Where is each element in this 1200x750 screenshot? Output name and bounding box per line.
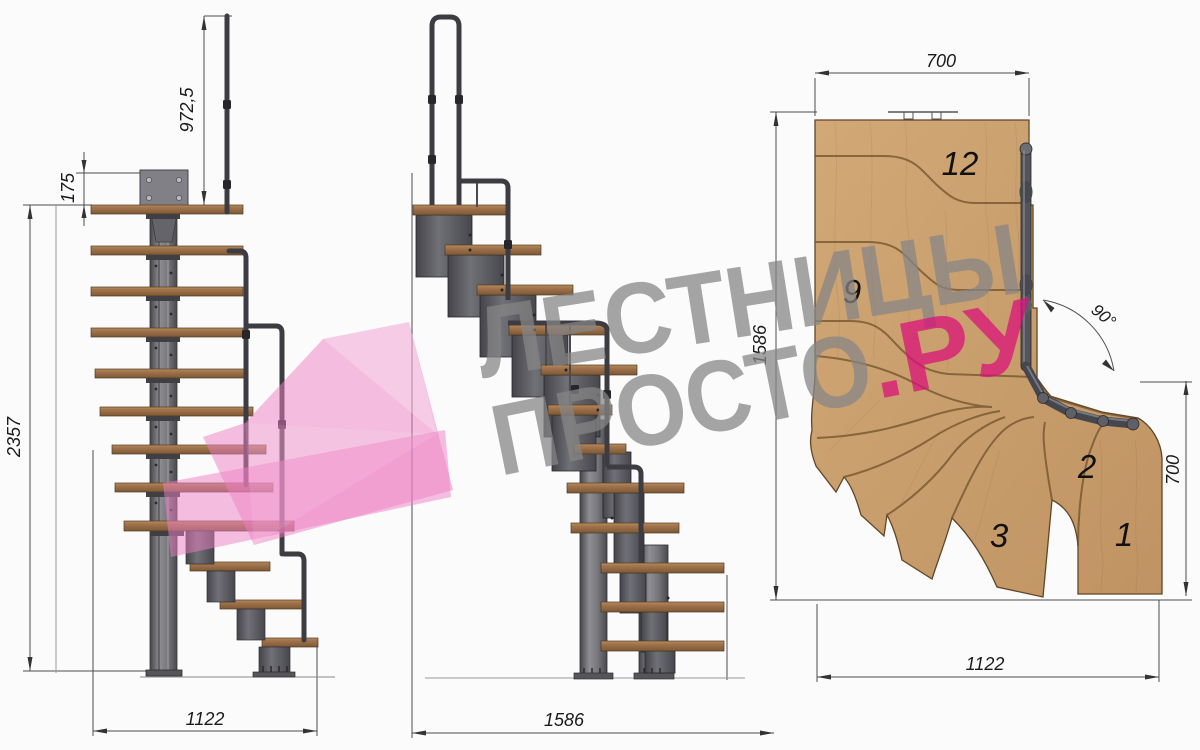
svg-text:2357: 2357 <box>4 416 24 458</box>
svg-text:12: 12 <box>942 145 979 182</box>
svg-text:175: 175 <box>58 172 78 203</box>
svg-text:700: 700 <box>926 51 956 71</box>
svg-text:1: 1 <box>1115 516 1133 553</box>
svg-text:3: 3 <box>990 517 1009 554</box>
svg-text:1586: 1586 <box>544 710 585 730</box>
svg-text:972,5: 972,5 <box>177 86 197 132</box>
svg-text:1122: 1122 <box>186 709 225 729</box>
svg-text:1122: 1122 <box>966 654 1005 674</box>
svg-text:700: 700 <box>1163 455 1183 485</box>
svg-text:2: 2 <box>1077 448 1096 485</box>
